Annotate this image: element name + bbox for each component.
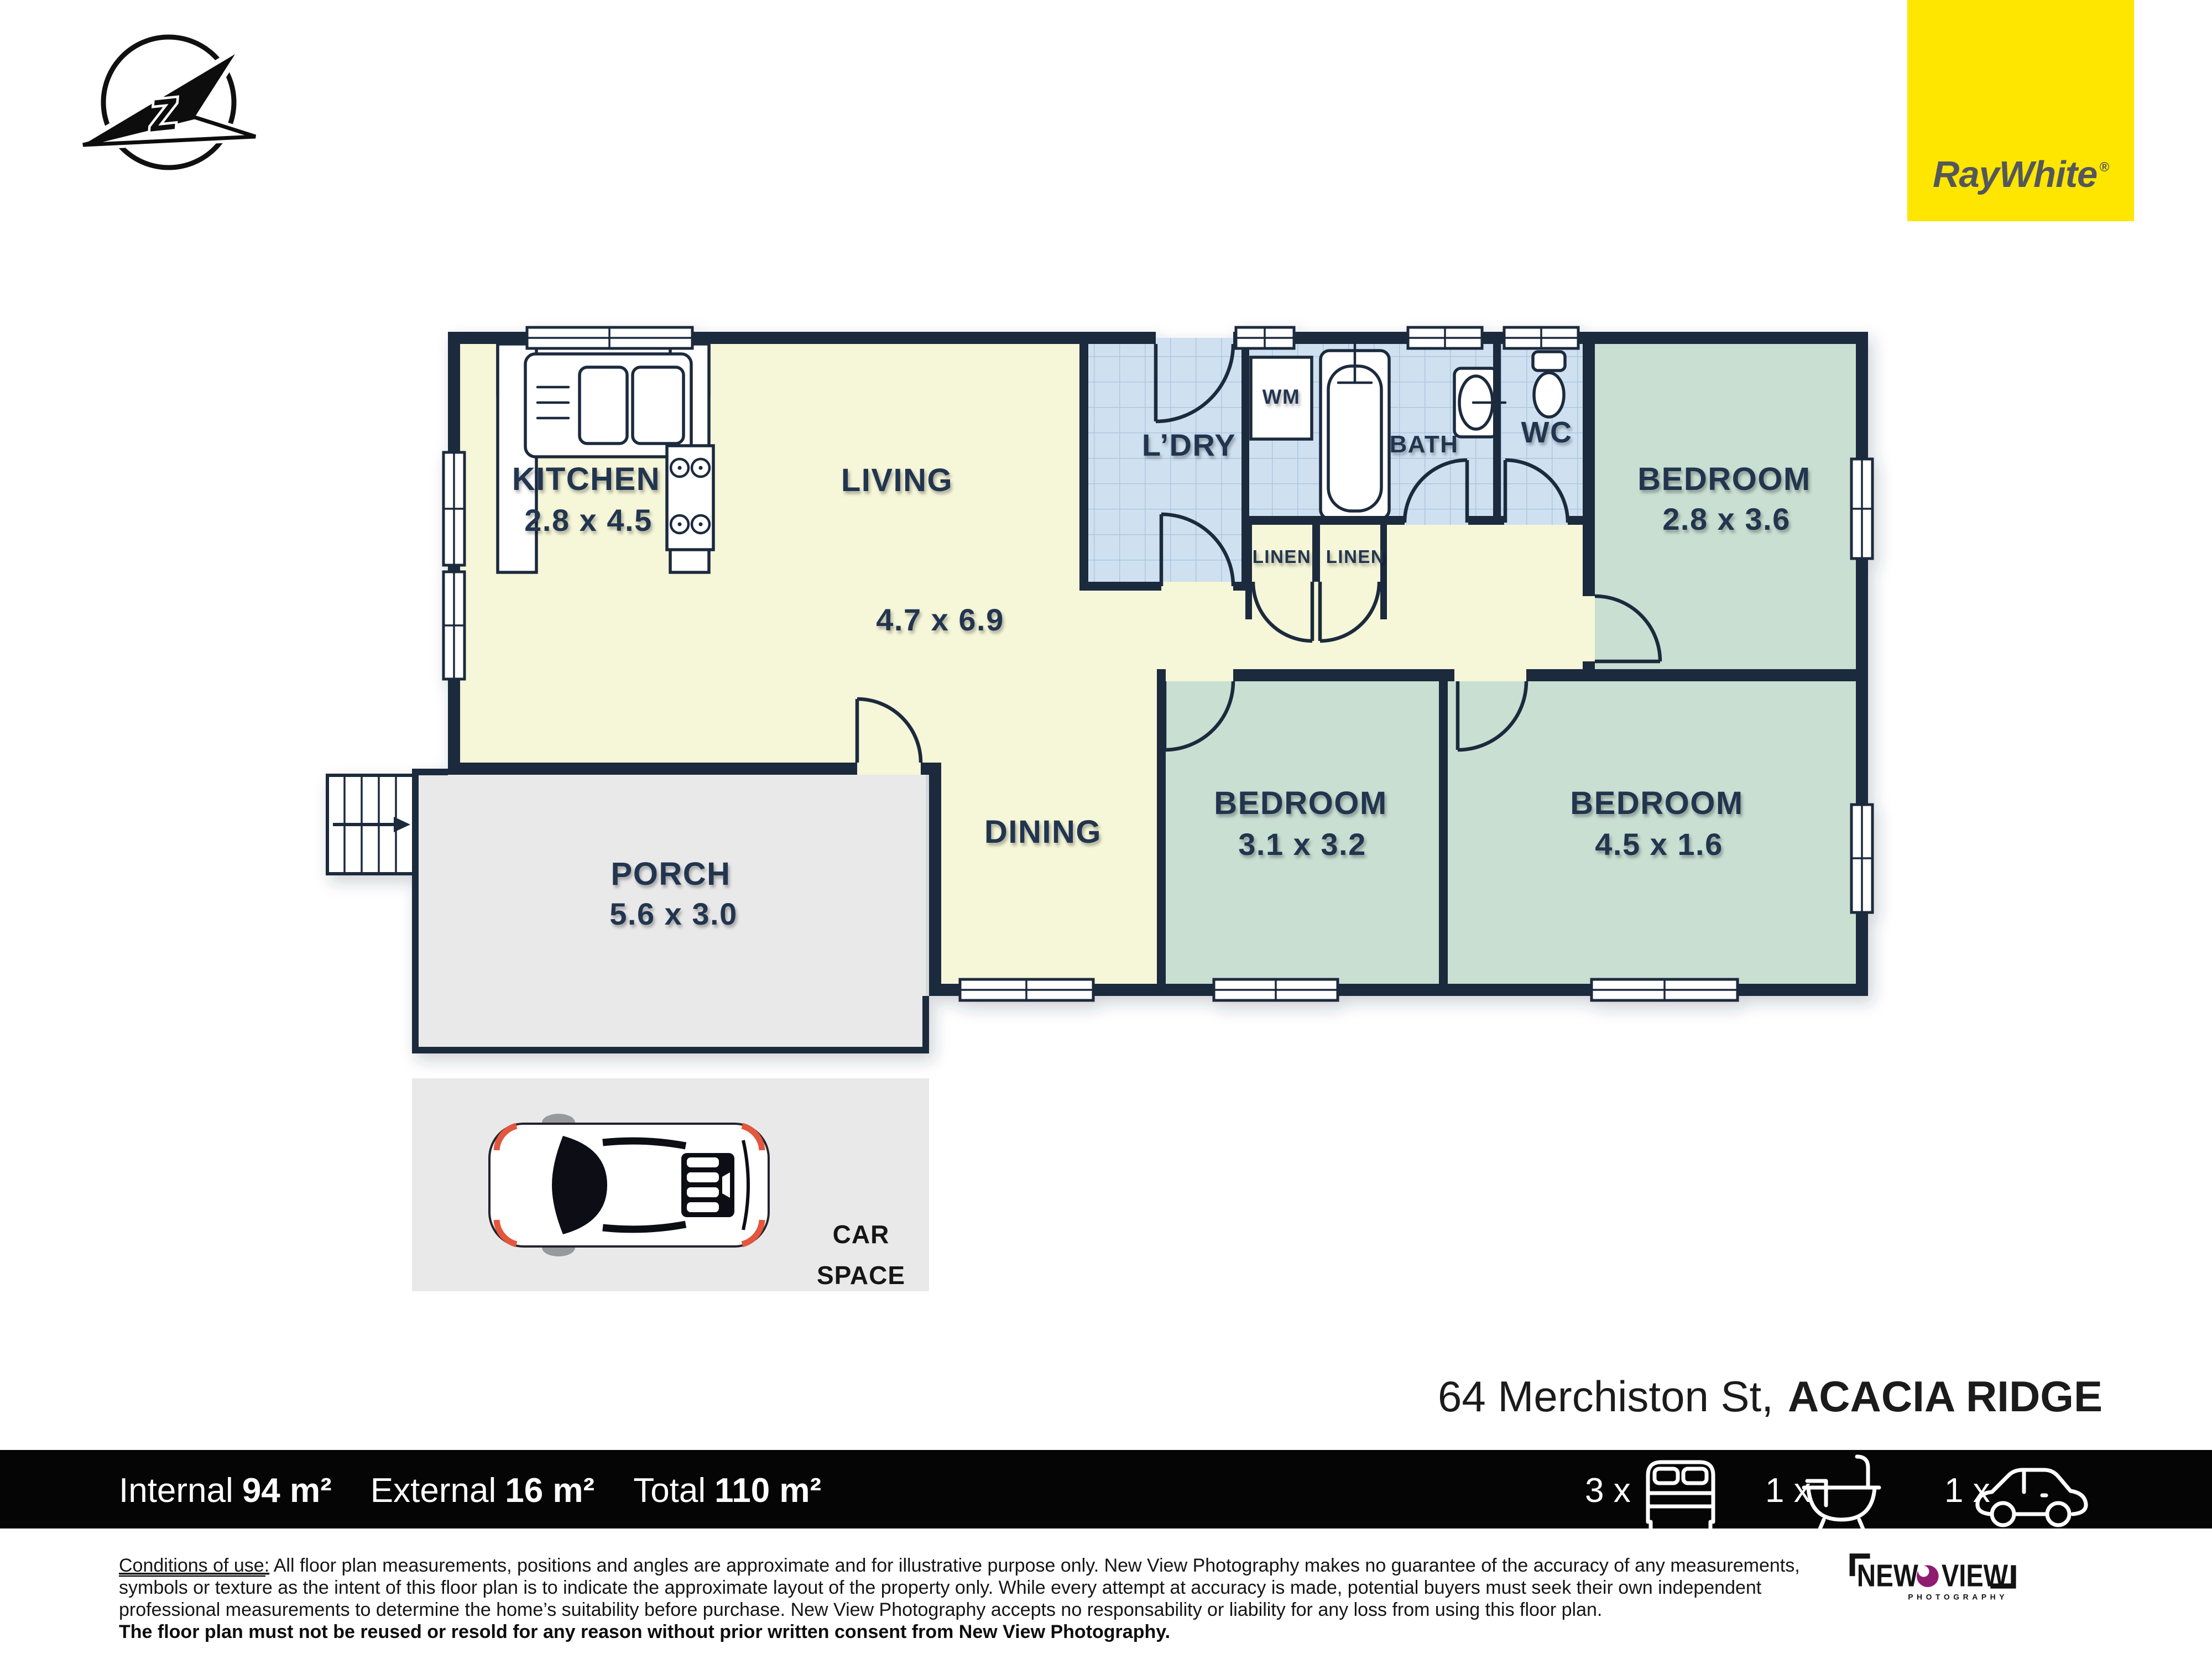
porch-dims: 5.6 x 3.0 bbox=[609, 896, 737, 931]
washing-machine-label: WM bbox=[1262, 385, 1301, 408]
disclaimer-line1: Conditions of use: All floor plan measur… bbox=[119, 1555, 1800, 1576]
disclaimer: Conditions of use: All floor plan measur… bbox=[119, 1555, 1800, 1642]
living-label: LIVING bbox=[841, 462, 953, 498]
bedroom3-side-window bbox=[1851, 805, 1872, 912]
bath-window bbox=[1408, 327, 1482, 348]
summary-bar: Internal94 m²External16 m²Total110 m² 3 … bbox=[0, 1450, 2212, 1533]
bedroom3-window bbox=[1592, 979, 1738, 1000]
car-space: CAR SPACE bbox=[412, 1078, 929, 1291]
wc-label: WC bbox=[1521, 416, 1573, 449]
new-view-word1: NEW bbox=[1857, 1559, 1918, 1594]
dining-window bbox=[960, 979, 1093, 1000]
ray-white-logo: RayWhite® bbox=[1907, 0, 2134, 221]
new-view-photography-logo: NEW VIEW PHOTOGRAPHY bbox=[1850, 1553, 2016, 1601]
floor-plan bbox=[327, 327, 1872, 1053]
car-space-label-line2: SPACE bbox=[817, 1261, 905, 1290]
area-summary: Internal94 m²External16 m²Total110 m² bbox=[119, 1472, 821, 1510]
porch-stairs bbox=[327, 775, 414, 874]
bedroom2-label: BEDROOM bbox=[1214, 785, 1387, 821]
living-dims: 4.7 x 6.9 bbox=[876, 602, 1004, 637]
address-street: 64 Merchiston St, bbox=[1438, 1372, 1773, 1421]
disclaimer-line4: The floor plan must not be reused or res… bbox=[119, 1621, 1170, 1642]
registered-trademark-icon: ® bbox=[2099, 160, 2109, 175]
bed-count: 3 x bbox=[1585, 1472, 1631, 1510]
compass-north-icon: Z bbox=[83, 37, 255, 168]
car-top-view-icon bbox=[489, 1114, 769, 1256]
disclaimer-title: Conditions of use: bbox=[119, 1555, 269, 1576]
linen1-label: LINEN bbox=[1253, 546, 1312, 567]
property-address: 64 Merchiston St,ACACIA RIDGE bbox=[1438, 1372, 2103, 1421]
kitchen-window bbox=[527, 327, 692, 348]
address-suburb: ACACIA RIDGE bbox=[1788, 1372, 2103, 1421]
bath-label: BATH bbox=[1390, 431, 1459, 458]
bathtub bbox=[1321, 343, 1389, 519]
disclaimer-line2: symbols or texture as the intent of this… bbox=[119, 1577, 1762, 1598]
kitchen-sink bbox=[525, 354, 691, 457]
car-count: 1 x bbox=[1944, 1472, 1990, 1510]
living-window-lower bbox=[444, 572, 465, 679]
living-window-upper bbox=[444, 452, 465, 565]
linen2-label: LINEN bbox=[1326, 546, 1385, 567]
new-view-subtitle: PHOTOGRAPHY bbox=[1908, 1592, 2008, 1601]
floorplan-page: Z RayWhite® bbox=[0, 0, 2212, 1659]
bedroom1-dims: 2.8 x 3.6 bbox=[1662, 502, 1790, 536]
bedroom1-window bbox=[1851, 459, 1872, 559]
porch-label: PORCH bbox=[611, 856, 731, 892]
laundry-label: L’DRY bbox=[1142, 427, 1236, 462]
ray-white-logo-text: RayWhite® bbox=[1933, 154, 2109, 195]
entry-door-opening bbox=[857, 763, 921, 775]
laundry-window bbox=[1236, 327, 1294, 348]
disclaimer-line3: professional measurements to determine t… bbox=[119, 1599, 1602, 1620]
floorplan-image: Z RayWhite® bbox=[0, 0, 2212, 1659]
kitchen-dims: 2.8 x 4.5 bbox=[524, 503, 652, 538]
bedroom3-dims: 4.5 x 1.6 bbox=[1595, 827, 1723, 862]
car-space-label-line1: CAR bbox=[833, 1220, 890, 1249]
bedroom3-label: BEDROOM bbox=[1570, 785, 1743, 821]
bedroom1-label: BEDROOM bbox=[1637, 461, 1811, 497]
stove-cooktop bbox=[667, 446, 713, 550]
kitchen-label: KITCHEN bbox=[512, 461, 660, 497]
bath-count: 1 x bbox=[1765, 1472, 1811, 1510]
dining-label: DINING bbox=[984, 814, 1102, 850]
toilet bbox=[1533, 352, 1565, 417]
bedroom2-dims: 3.1 x 3.2 bbox=[1238, 827, 1366, 862]
bedroom2-window bbox=[1214, 979, 1338, 1000]
wc-window bbox=[1504, 327, 1578, 348]
